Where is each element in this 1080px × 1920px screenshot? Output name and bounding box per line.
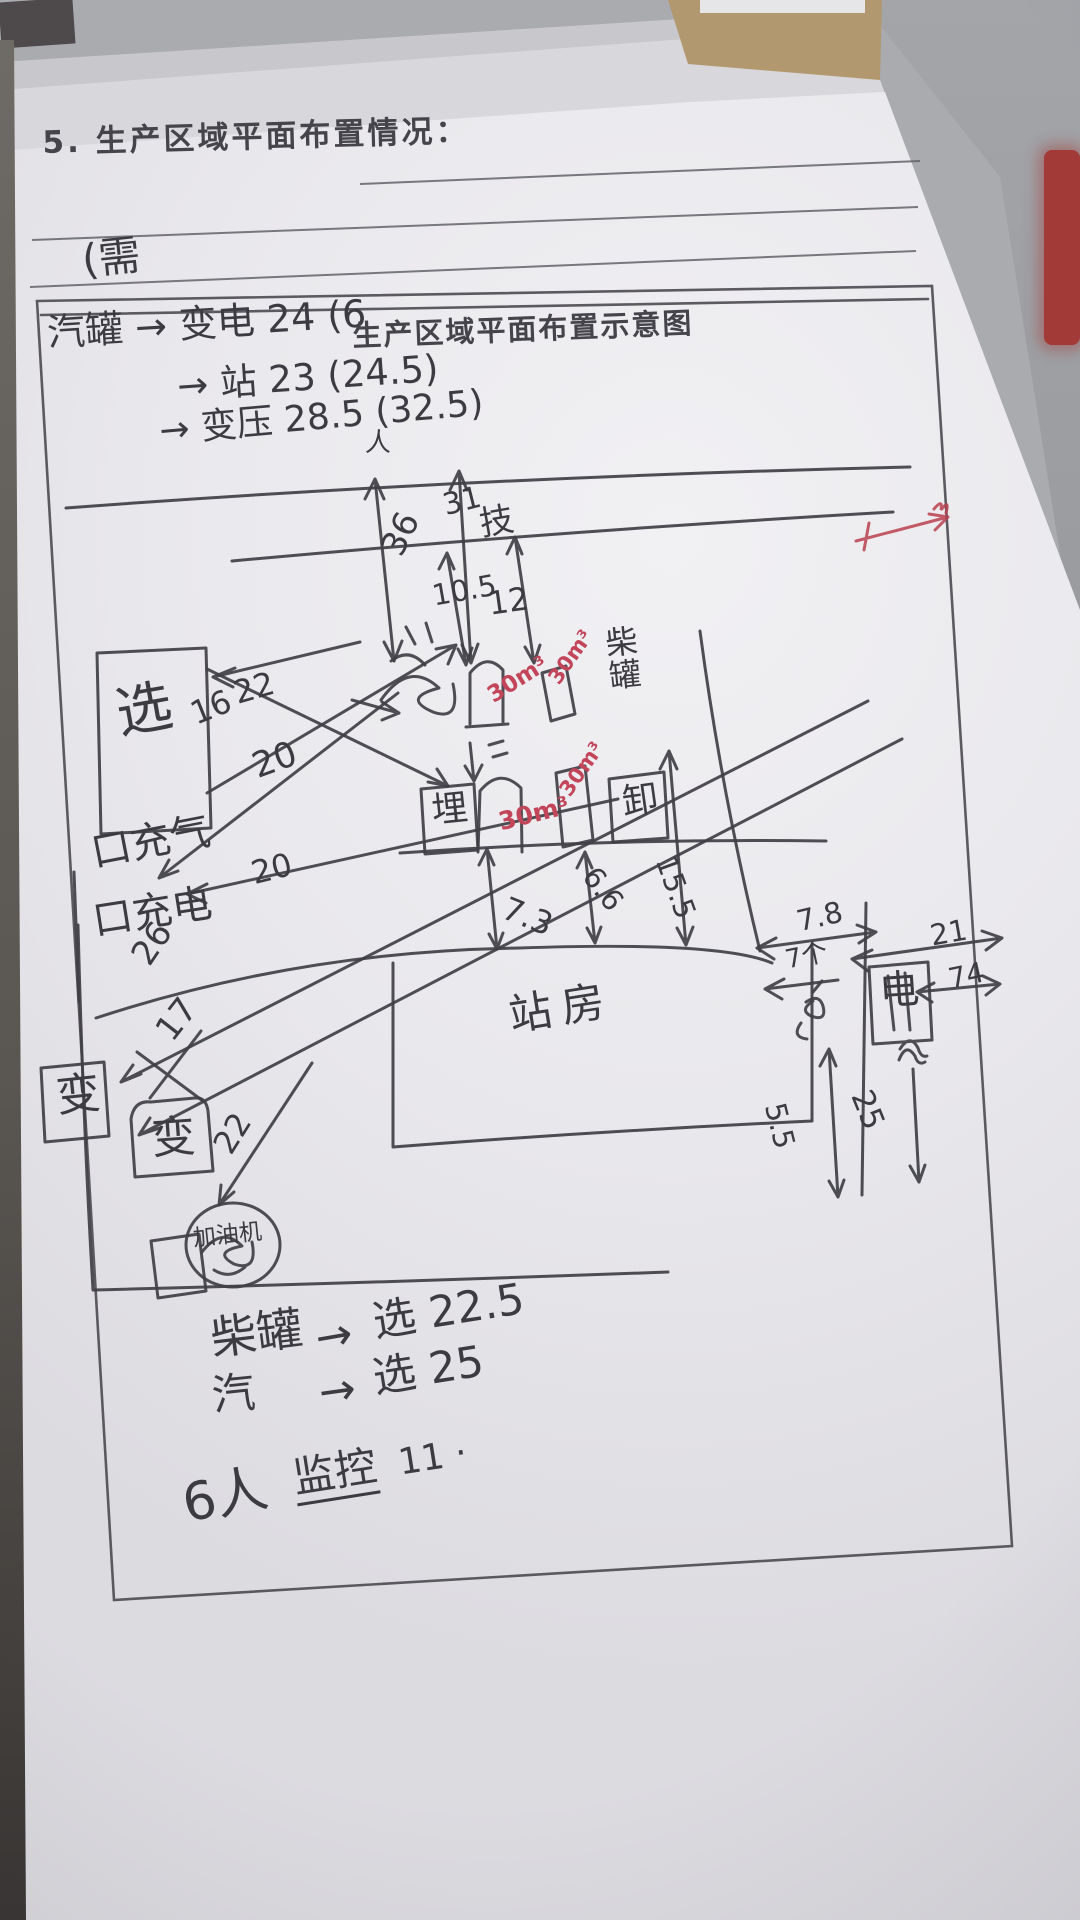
footer-line2-arrow: → <box>316 1367 359 1416</box>
double-tick-mark <box>489 741 507 757</box>
fence-line <box>232 512 893 561</box>
note-above-frame: (需 <box>80 234 142 282</box>
dim-22: 22 <box>230 667 278 709</box>
arrow-5-5 <box>820 1049 844 1197</box>
arrow-diagonal-26 <box>121 701 868 1082</box>
electric-box-label: 电 <box>878 969 921 1012</box>
wall-char: 技 <box>477 502 516 541</box>
person-mark: 人 <box>365 430 392 456</box>
arrow-left-7pcs <box>765 979 838 999</box>
form-number: 5. <box>42 124 82 161</box>
dim-20b: 20 <box>248 848 295 889</box>
station-building-outline <box>393 945 812 1147</box>
scribble-near-electric-box <box>797 981 824 1039</box>
arrow-25 <box>899 1050 925 1182</box>
north-arrow-red <box>856 504 948 550</box>
arrow-into-buried-box <box>465 743 482 781</box>
buried-box-label: 埋 <box>430 790 470 830</box>
compound-right-fence <box>700 631 760 951</box>
footer-line2-subject: 汽 <box>210 1372 257 1419</box>
footer-line1-arrow: → <box>312 1312 356 1362</box>
footer-line1-subject: 柴罐 <box>208 1305 305 1362</box>
tank-stack-label: 柴罐 <box>604 624 651 693</box>
unload-box-label: 卸 <box>620 781 661 822</box>
sel-box-label: 选 <box>112 678 177 743</box>
inner-vertical-line <box>862 903 866 1195</box>
dim-12: 12 <box>486 582 531 619</box>
transformer-label-1: 变 <box>54 1071 102 1119</box>
rule-line-2 <box>32 207 918 240</box>
rule-line-3 <box>30 251 916 287</box>
arrow-36 <box>365 479 402 661</box>
photo-of-handwritten-site-plan: 5. 生产区域平面布置情况： (需 汽罐 → 变电 24 (6 生产区域平面布置… <box>0 0 1080 1920</box>
rule-line-1 <box>360 161 920 184</box>
transformer-label-2: 变 <box>150 1115 197 1162</box>
dim-21: 21 <box>928 916 969 951</box>
dim-74: 74 <box>946 959 987 994</box>
